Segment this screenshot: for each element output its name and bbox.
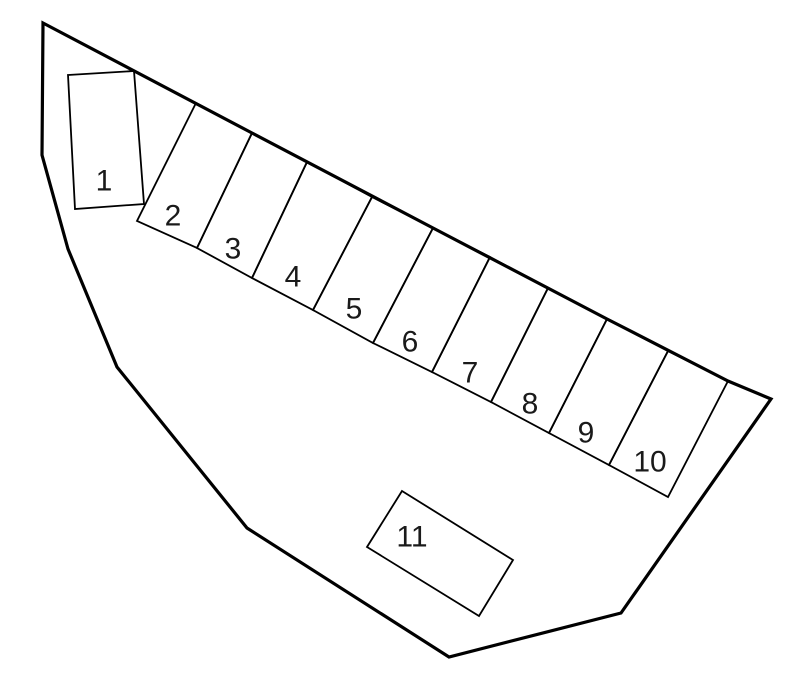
space-5-outline <box>313 197 433 343</box>
space-2-label: 2 <box>165 200 182 233</box>
space-10-label: 10 <box>633 446 666 479</box>
space-7-label: 7 <box>462 357 479 390</box>
space-9: 9 <box>549 319 668 465</box>
space-2-outline <box>137 103 252 248</box>
space-7: 7 <box>432 257 548 402</box>
site-plan-canvas: 1234567891011 <box>0 0 804 687</box>
space-6-label: 6 <box>402 326 419 359</box>
space-8: 8 <box>491 288 607 433</box>
space-11-outline <box>367 491 513 616</box>
spaces-layer: 1234567891011 <box>68 71 728 616</box>
space-5-label: 5 <box>346 293 363 326</box>
space-9-outline <box>549 319 668 465</box>
space-3-label: 3 <box>225 233 242 266</box>
space-11-label: 11 <box>396 521 427 554</box>
space-5: 5 <box>313 197 433 343</box>
space-7-outline <box>432 257 548 402</box>
space-2: 2 <box>137 103 252 248</box>
space-8-outline <box>491 288 607 433</box>
space-1-label: 1 <box>96 165 113 198</box>
space-4-outline <box>252 162 372 310</box>
space-10: 10 <box>609 351 728 497</box>
space-10-outline <box>609 351 728 497</box>
site-plan: 1234567891011 <box>0 0 804 687</box>
space-8-label: 8 <box>522 388 539 421</box>
space-4: 4 <box>252 162 372 310</box>
space-9-label: 9 <box>578 417 595 450</box>
space-4-label: 4 <box>285 261 302 294</box>
space-1: 1 <box>68 71 144 209</box>
space-11: 11 <box>367 491 513 616</box>
